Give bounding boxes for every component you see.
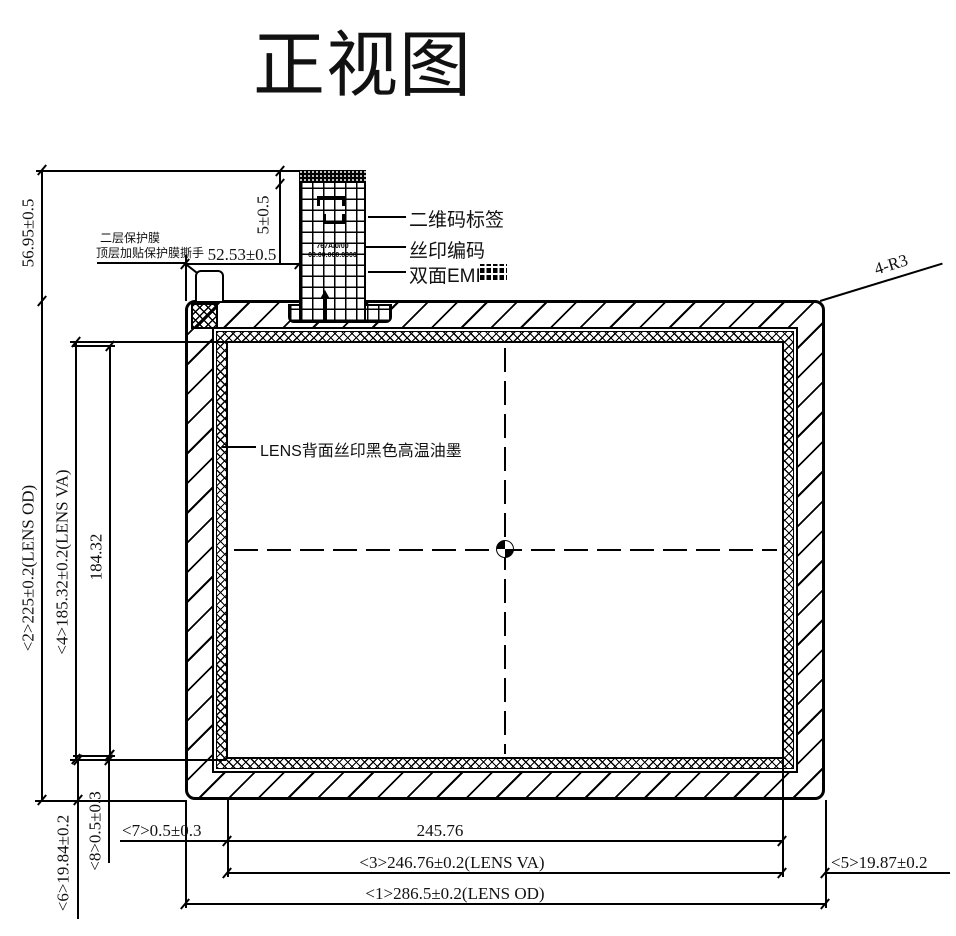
dim4-text: <4>185.32±0.2(LENS VA) — [54, 469, 71, 654]
ext-line-panel-bottom-left — [35, 800, 185, 802]
dim2-text: <2>225±0.2(LENS OD) — [20, 485, 37, 651]
silkscreen-code: 767A/0/00 00.00.000.0000 — [299, 243, 366, 260]
front-view-drawing: 正视图 LENS背面丝印黑色高温油墨 767A/0/00 00.00.000.0… — [0, 0, 956, 936]
dim2-line — [41, 301, 43, 800]
ink-label-leader — [222, 446, 256, 448]
qr-label: 二维码标签 — [409, 205, 504, 232]
dim7-text: <7>0.5±0.3 — [122, 822, 202, 839]
dim184-text: 184.32 — [88, 534, 105, 581]
dim4-line — [75, 341, 77, 759]
silkscreen-code-line1: 767A/0/00 — [299, 243, 366, 252]
dim8-line — [108, 755, 110, 863]
dim5right-line — [825, 872, 950, 874]
qr-label-leader — [368, 216, 406, 218]
dim6-line — [77, 759, 79, 919]
dim5top-text: 5±0.5 — [255, 195, 272, 234]
dim3-line — [227, 872, 782, 874]
emi-strip — [299, 170, 366, 183]
dim245-line — [227, 840, 782, 842]
dim1-text: <1>286.5±0.2(LENS OD) — [365, 885, 544, 902]
dim56-line — [41, 170, 43, 301]
emi-label: 双面EMI — [409, 261, 481, 288]
dim52-text: 52.53±0.5 — [208, 246, 277, 263]
tab-center-arrow-line — [324, 298, 327, 322]
dim6-text: <6>19.84±0.2 — [55, 815, 72, 912]
dim5right-text: <5>19.87±0.2 — [831, 854, 928, 871]
emi-grid-icon — [480, 264, 507, 280]
ink-label: LENS背面丝印黑色高温油墨 — [260, 437, 462, 461]
page-title: 正视图 — [253, 6, 472, 111]
qr-mark-bottom-icon — [323, 214, 345, 224]
film-tear-tab — [195, 270, 224, 303]
emi-label-leader — [368, 271, 406, 273]
dim7-line — [120, 840, 227, 842]
dim245-text: 245.76 — [417, 822, 464, 839]
ext-line-od-left-down — [185, 800, 187, 908]
silk-label: 丝印编码 — [409, 236, 485, 263]
ext-line-va-bottom — [70, 759, 226, 761]
qr-mark-top-icon — [317, 196, 345, 206]
center-mark-icon — [496, 540, 514, 558]
dim8-text: <8>0.5±0.3 — [87, 791, 104, 871]
dim3-text: <3>246.76±0.2(LENS VA) — [359, 854, 544, 871]
silkscreen-code-line2: 00.00.000.0000 — [299, 252, 366, 261]
ext-line-tab-top — [36, 170, 300, 172]
ext-line-va-right-down — [782, 759, 784, 877]
ext-line-od-right-down — [825, 800, 827, 908]
dim1-line — [185, 903, 825, 905]
dim56-text: 56.95±0.5 — [20, 199, 37, 268]
dim184-line — [109, 345, 111, 755]
ext-line-va-top — [70, 341, 226, 343]
film-corner-patch — [191, 303, 218, 329]
film-note-underline — [97, 262, 186, 264]
